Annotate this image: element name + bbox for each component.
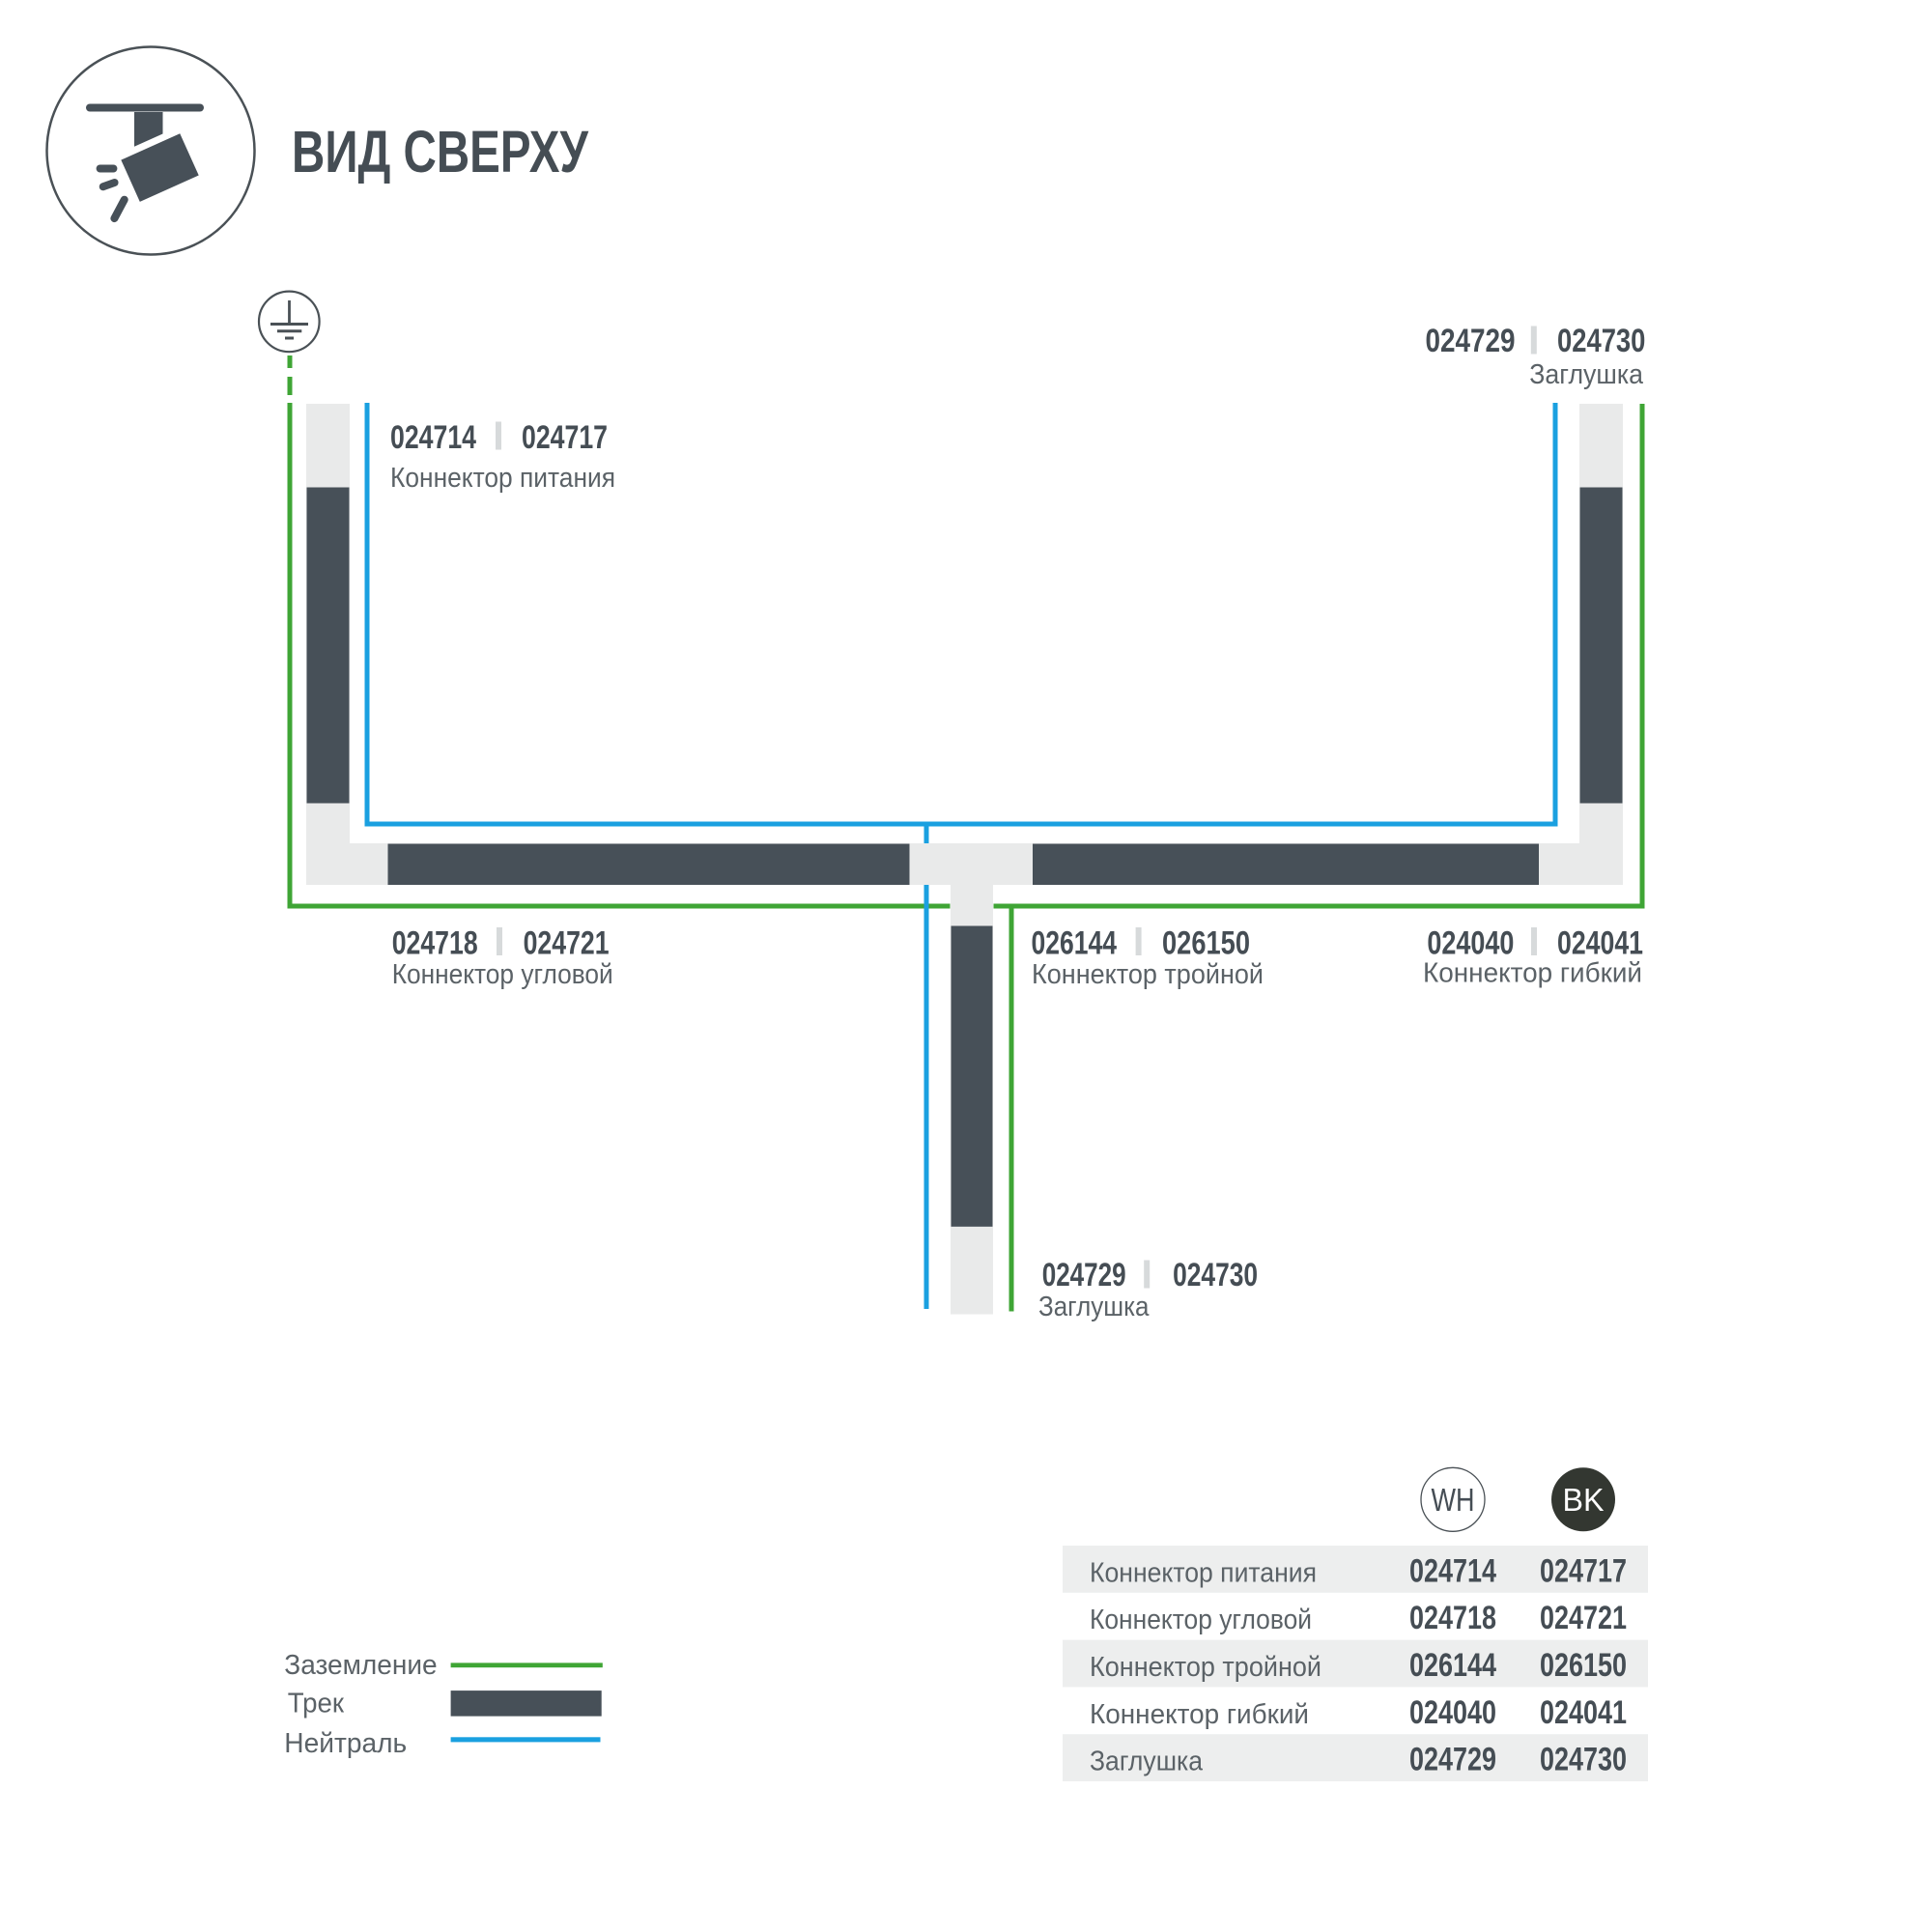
svg-text:024040: 024040	[1427, 924, 1514, 961]
svg-text:026150: 026150	[1162, 924, 1250, 961]
svg-text:Трек: Трек	[288, 1689, 344, 1719]
svg-text:WH: WH	[1432, 1482, 1475, 1518]
svg-text:024041: 024041	[1557, 924, 1643, 961]
svg-text:024718: 024718	[1409, 1600, 1496, 1636]
svg-text:024041: 024041	[1540, 1694, 1627, 1731]
svg-text:Коннектор питания: Коннектор питания	[1090, 1557, 1317, 1588]
svg-text:024717: 024717	[1540, 1552, 1627, 1589]
svg-text:024721: 024721	[524, 924, 610, 961]
svg-text:Нейтраль: Нейтраль	[284, 1728, 407, 1759]
svg-text:024730: 024730	[1540, 1742, 1627, 1778]
svg-text:024729: 024729	[1042, 1257, 1126, 1293]
svg-text:026150: 026150	[1540, 1647, 1627, 1684]
svg-text:Коннектор гибкий: Коннектор гибкий	[1423, 958, 1642, 989]
svg-text:Коннектор угловой: Коннектор угловой	[1090, 1605, 1312, 1635]
svg-text:026144: 026144	[1032, 924, 1118, 961]
svg-text:Коннектор гибкий: Коннектор гибкий	[1090, 1699, 1309, 1730]
svg-text:Коннектор угловой: Коннектор угловой	[392, 959, 613, 990]
svg-text:024730: 024730	[1173, 1257, 1258, 1293]
svg-text:Заземление: Заземление	[284, 1650, 437, 1681]
svg-text:024729: 024729	[1426, 323, 1516, 359]
svg-text:Заглушка: Заглушка	[1038, 1292, 1150, 1322]
svg-text:024714: 024714	[390, 419, 476, 456]
svg-text:024721: 024721	[1540, 1600, 1627, 1636]
svg-text:ВИД СВЕРХУ: ВИД СВЕРХУ	[292, 119, 589, 185]
svg-text:024718: 024718	[392, 924, 478, 961]
svg-text:Коннектор питания: Коннектор питания	[390, 463, 615, 494]
svg-text:024730: 024730	[1557, 323, 1645, 359]
svg-text:BK: BK	[1563, 1482, 1605, 1518]
svg-text:024040: 024040	[1409, 1694, 1496, 1731]
svg-text:024714: 024714	[1409, 1552, 1496, 1589]
svg-text:Заглушка: Заглушка	[1090, 1747, 1204, 1777]
svg-text:026144: 026144	[1409, 1647, 1496, 1684]
svg-text:Коннектор тройной: Коннектор тройной	[1032, 959, 1264, 990]
svg-text:024729: 024729	[1409, 1742, 1496, 1778]
svg-text:024717: 024717	[522, 419, 608, 456]
svg-text:Заглушка: Заглушка	[1529, 359, 1643, 390]
svg-text:Коннектор тройной: Коннектор тройной	[1090, 1652, 1321, 1683]
